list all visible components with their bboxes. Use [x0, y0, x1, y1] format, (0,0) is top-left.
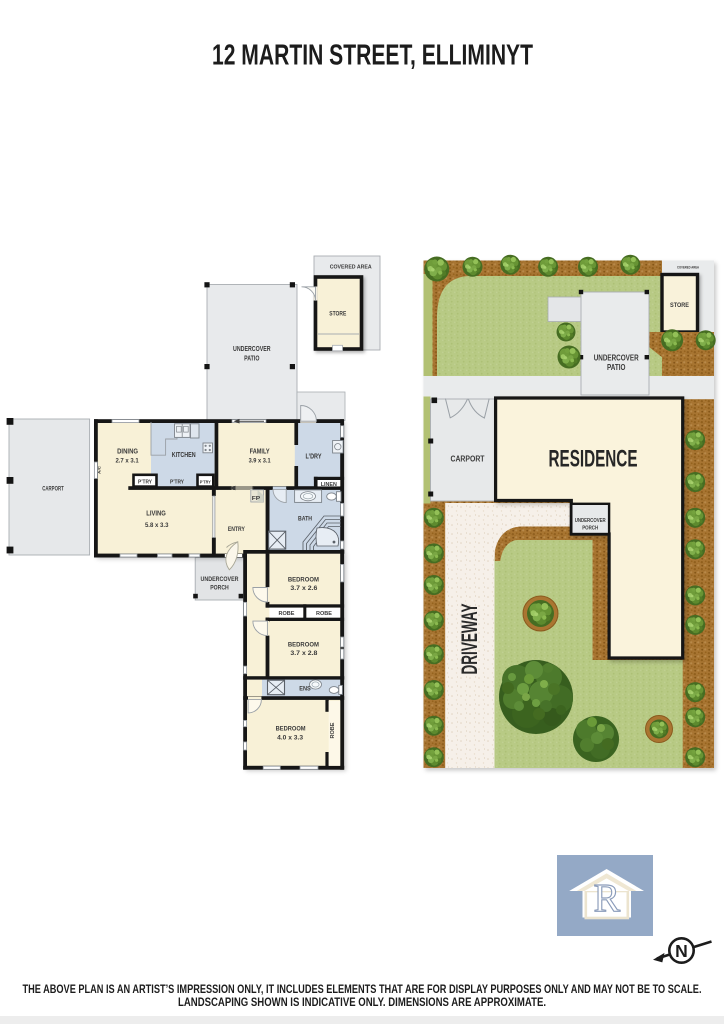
- svg-text:FAMILY: FAMILY: [250, 449, 270, 456]
- svg-text:PATIO: PATIO: [244, 354, 260, 363]
- svg-text:ROBE: ROBE: [279, 611, 295, 617]
- svg-text:UNDERCOVER: UNDERCOVER: [201, 576, 239, 583]
- svg-text:STORE: STORE: [670, 302, 689, 309]
- svg-text:BEDROOM: BEDROOM: [288, 577, 319, 584]
- svg-text:L’DRY: L’DRY: [306, 454, 322, 461]
- svg-text:FP: FP: [252, 496, 261, 502]
- svg-text:UNDERCOVER: UNDERCOVER: [594, 354, 639, 363]
- svg-text:2.7 x 3.1: 2.7 x 3.1: [115, 458, 138, 465]
- svg-text:UNDERCOVER: UNDERCOVER: [575, 518, 606, 524]
- svg-text:CARPORT: CARPORT: [42, 486, 64, 493]
- svg-text:P’TRY: P’TRY: [200, 480, 212, 486]
- svg-text:5.8 x 3.3: 5.8 x 3.3: [145, 522, 169, 529]
- svg-text:R: R: [593, 876, 620, 921]
- svg-text:DRIVEWAY: DRIVEWAY: [457, 603, 482, 674]
- svg-text:N: N: [675, 941, 688, 961]
- svg-text:3.7 x 2.6: 3.7 x 2.6: [290, 585, 317, 592]
- svg-text:BEDROOM: BEDROOM: [276, 726, 306, 733]
- svg-text:STORE: STORE: [329, 311, 347, 318]
- svg-text:BATH: BATH: [298, 516, 312, 523]
- svg-text:4.0 x 3.3: 4.0 x 3.3: [277, 735, 303, 742]
- svg-text:ROBE: ROBE: [316, 611, 332, 617]
- svg-text:KITCHEN: KITCHEN: [172, 452, 196, 459]
- svg-text:3.7 x 2.8: 3.7 x 2.8: [290, 650, 317, 657]
- svg-text:A/C: A/C: [97, 466, 102, 474]
- svg-text:ENTRY: ENTRY: [228, 526, 245, 533]
- svg-text:BEDROOM: BEDROOM: [288, 642, 319, 649]
- svg-text:PORCH: PORCH: [210, 585, 229, 592]
- svg-text:PATIO: PATIO: [607, 363, 626, 372]
- svg-text:RESIDENCE: RESIDENCE: [549, 445, 638, 472]
- svg-text:12 MARTIN STREET, ELLIMINYT: 12 MARTIN STREET, ELLIMINYT: [212, 39, 533, 71]
- svg-text:LIVING: LIVING: [146, 509, 166, 518]
- svg-text:UNDERCOVER: UNDERCOVER: [233, 344, 271, 353]
- svg-text:P’TRY: P’TRY: [138, 480, 152, 486]
- svg-text:LINEN: LINEN: [321, 482, 337, 488]
- svg-text:COVERED AREA: COVERED AREA: [330, 265, 372, 271]
- svg-text:P’TRY: P’TRY: [170, 480, 184, 486]
- svg-text:DINING: DINING: [117, 449, 138, 456]
- svg-text:CARPORT: CARPORT: [451, 455, 485, 464]
- svg-text:ENS: ENS: [299, 686, 311, 693]
- svg-text:3.9 x 3.1: 3.9 x 3.1: [249, 458, 271, 465]
- svg-text:PORCH: PORCH: [582, 526, 598, 532]
- svg-text:ROBE: ROBE: [330, 722, 336, 738]
- svg-text:THE ABOVE PLAN IS AN ARTIST’S: THE ABOVE PLAN IS AN ARTIST’S IMPRESSION…: [23, 983, 702, 996]
- svg-text:LANDSCAPING SHOWN IS INDICATIV: LANDSCAPING SHOWN IS INDICATIVE ONLY. DI…: [178, 996, 546, 1009]
- svg-text:COVERED AREA: COVERED AREA: [677, 265, 699, 270]
